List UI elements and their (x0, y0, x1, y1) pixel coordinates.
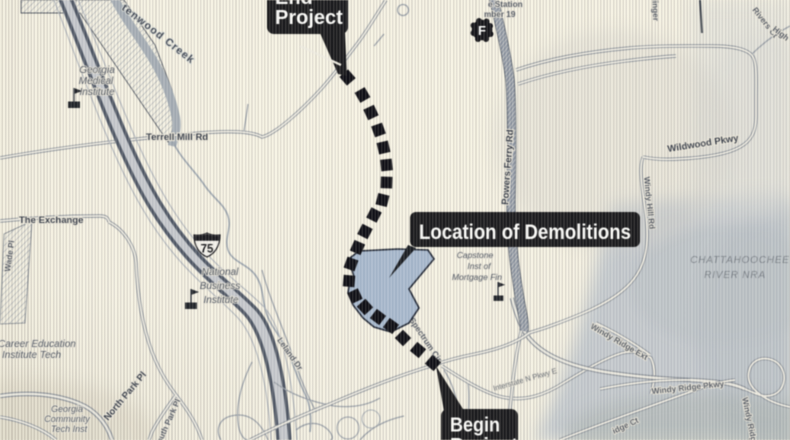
svg-text:mber 19: mber 19 (484, 10, 516, 19)
svg-text:e Station: e Station (488, 0, 523, 9)
svg-text:Begin: Begin (450, 415, 500, 437)
svg-text:Business: Business (200, 281, 241, 292)
svg-text:South Park Pl: South Park Pl (153, 398, 183, 440)
svg-text:Institute Tech: Institute Tech (2, 350, 62, 361)
svg-text:Terrell Mill Rd: Terrell Mill Rd (146, 132, 208, 143)
svg-text:Project: Project (450, 435, 518, 440)
svg-text:Georgia: Georgia (51, 404, 83, 414)
svg-text:Project: Project (275, 7, 343, 29)
svg-text:CHATTAHOOCHEE: CHATTAHOOCHEE (690, 255, 789, 266)
svg-text:Interstate N Pkwy E: Interstate N Pkwy E (492, 366, 558, 393)
svg-text:Ballinger: Ballinger (650, 0, 660, 22)
svg-text:Mortgage Fin: Mortgage Fin (452, 272, 502, 282)
svg-text:Career Education: Career Education (0, 339, 76, 350)
svg-text:Tech Inst: Tech Inst (51, 424, 88, 434)
svg-text:Institute: Institute (203, 295, 238, 306)
svg-text:Georgia: Georgia (79, 65, 115, 76)
svg-text:Institute: Institute (79, 87, 114, 98)
svg-text:Capstone: Capstone (457, 250, 494, 260)
svg-text:Spectrum Cir: Spectrum Cir (407, 316, 444, 364)
svg-text:75: 75 (201, 244, 214, 256)
svg-text:Medical: Medical (79, 76, 114, 87)
svg-text:RIVER NRA: RIVER NRA (704, 270, 766, 281)
svg-text:The Exchange: The Exchange (19, 215, 83, 226)
svg-text:Location of Demolitions: Location of Demolitions (419, 221, 631, 244)
svg-text:Community: Community (44, 414, 90, 424)
svg-text:Inst of: Inst of (467, 261, 492, 271)
svg-text:National: National (202, 267, 239, 278)
svg-text:F: F (478, 23, 486, 38)
